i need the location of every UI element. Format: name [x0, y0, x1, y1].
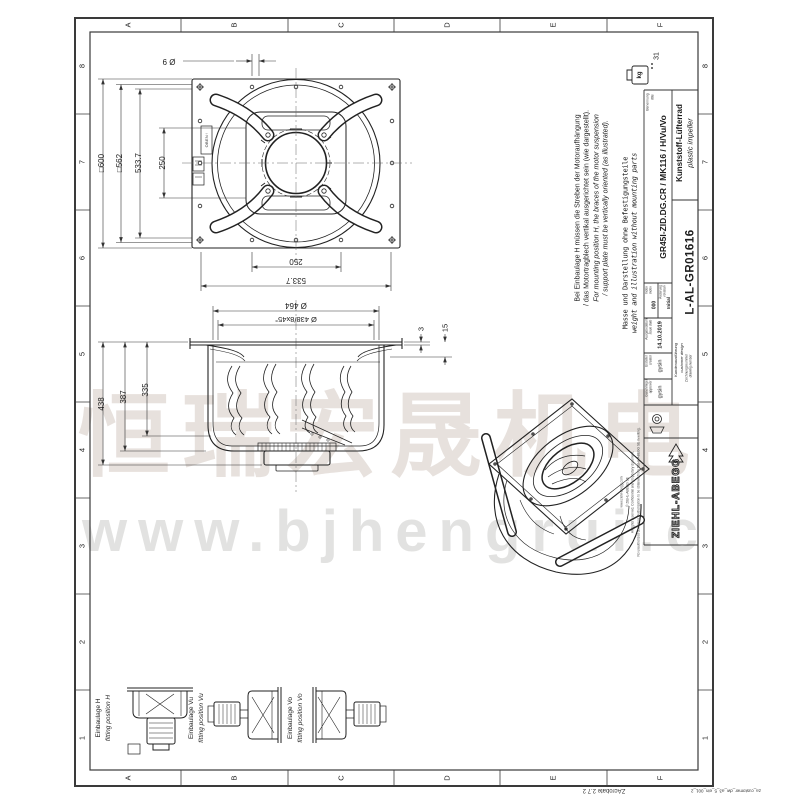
- weight-value: 31: [654, 52, 661, 60]
- product-name-en: plastic impeller: [686, 118, 694, 168]
- dim-height-387: 387: [120, 390, 128, 403]
- grid-number-right-6: 6: [701, 256, 709, 260]
- fitting-vo-label-de: Einbaulage Vo: [288, 697, 295, 739]
- dim-depth-15: 15: [441, 324, 449, 332]
- footer-acrobat-stamp: ZAcrobate 2.7 2: [583, 787, 626, 793]
- dim-square-600: □600: [98, 154, 106, 172]
- drawing-sheet: 恒瑞宏晟机电 www.bjhengrui.c: [0, 0, 800, 800]
- product-name-de: Kunststoff-Lüfterrad: [676, 104, 684, 182]
- grid-letter-bottom-f: F: [656, 776, 664, 781]
- note-de-line2: / das Motortragblech vertikal ausgericht…: [584, 110, 591, 306]
- section-view-dimensions: [98, 306, 452, 465]
- grid-letter-top-f: F: [656, 23, 664, 28]
- index-label-en: index: [649, 286, 652, 294]
- customer-design-label: Kundenausführung: [674, 343, 678, 377]
- grid-number-right-3: 3: [701, 544, 709, 548]
- legal-line-4: No unauthorized disclosure. Authorizatio…: [637, 428, 640, 557]
- fitting-vu-label-en: fitting position Vu: [199, 693, 206, 742]
- dim-533-7-vertical: 533.7: [135, 153, 143, 173]
- note-en-line1: For mounting position H, the braces of t…: [593, 114, 600, 302]
- grid-letter-top-d: D: [443, 22, 451, 27]
- grid-letter-top-a: A: [124, 22, 132, 27]
- note-mass-de: Masse und Darstellung ohne Befestigungst…: [623, 157, 630, 329]
- drawing-number-value: L-AL-GR01616: [685, 229, 697, 314]
- grid-letter-top-b: B: [230, 22, 238, 27]
- fitting-views: [127, 687, 386, 754]
- grid-letter-bottom-e: E: [549, 775, 557, 780]
- grid-number-right-8: 8: [701, 64, 709, 68]
- company-logo-text: ZIEHL-ABEGG: [672, 458, 682, 538]
- grid-number-right-2: 2: [701, 640, 709, 644]
- dim-height-335: 335: [142, 383, 150, 396]
- oben-up-marker: OBEN↑: [205, 133, 209, 148]
- grid-number-left-7: 7: [78, 160, 86, 164]
- issue-date-label-en: issue date: [649, 320, 652, 335]
- dim-250-vertical: 250: [159, 156, 167, 169]
- revision-value: Initial: [667, 297, 672, 309]
- grid-number-left-6: 6: [78, 256, 86, 260]
- grid-number-left-3: 3: [78, 544, 86, 548]
- creator-value: gysin: [658, 360, 664, 373]
- dim-diameter-438-8x45: Ø 438/8x45°: [275, 315, 317, 323]
- projection-symbol-icon: [650, 415, 664, 434]
- legal-line-1: www.ziehl-abegg.com: [620, 476, 623, 507]
- dim-height-438: 438: [98, 397, 106, 410]
- legal-line-3: All rights reserved. Confidential and pr…: [631, 451, 634, 533]
- approver-value: gysin: [658, 386, 664, 399]
- grid-number-right-1: 1: [701, 736, 709, 740]
- fitting-vu-label-de: Einbaulage Vu: [189, 697, 196, 739]
- grid-letter-bottom-c: C: [337, 775, 345, 780]
- approver-label-en: approver: [649, 381, 652, 394]
- grid-letter-bottom-a: A: [124, 775, 132, 780]
- dim-thickness-3: 3: [417, 327, 425, 331]
- note-de-line1: Bei Einbaulage H müssen die Streben der …: [575, 114, 582, 301]
- fitting-h-label-en: fitting position H: [106, 695, 113, 741]
- benennung-label: Benennung: [646, 93, 649, 110]
- grid-number-right-4: 4: [701, 448, 709, 452]
- grid-number-left-1: 1: [78, 736, 86, 740]
- note-en-line2: / support plate must be vertically orien…: [603, 120, 610, 295]
- grid-number-right-7: 7: [701, 160, 709, 164]
- title-label: title: [651, 94, 654, 99]
- customer-design-label-en: customer design: [680, 343, 684, 372]
- grid-letter-bottom-b: B: [230, 775, 238, 780]
- grid-letter-top-e: E: [549, 22, 557, 27]
- dim-square-562: □562: [116, 154, 124, 172]
- dim-diameter-464: Ø 464: [285, 301, 307, 309]
- grid-letter-bottom-d: D: [443, 775, 451, 780]
- fitting-h-label-de: Einbaulage H: [96, 698, 103, 737]
- note-mass-en: weight and illustration without mounting…: [632, 153, 639, 333]
- creator-label-en: creator: [649, 355, 652, 365]
- dim-hole-diameter-9: Ø 9: [163, 57, 176, 65]
- dim-533-7-horizontal: 533.7: [286, 276, 306, 284]
- grid-number-left-2: 2: [78, 640, 86, 644]
- grid-number-left-8: 8: [78, 64, 86, 68]
- fitting-vo-label-en: fitting position Vo: [298, 693, 305, 742]
- legal-line-2: © ZIEHL-ABEGG SE: [626, 477, 629, 507]
- revision-label-en: revision: [663, 286, 666, 297]
- drawing-number-label-en: drawing number: [689, 355, 692, 378]
- dim-250-horizontal: 250: [289, 257, 302, 265]
- grid-number-left-4: 4: [78, 448, 86, 452]
- weight-unit: kg: [637, 71, 643, 78]
- grid-number-right-5: 5: [701, 352, 709, 356]
- grid-number-left-5: 5: [78, 352, 86, 356]
- issue-date-value: 14.10.2019: [658, 321, 664, 349]
- grid-letter-top-c: C: [337, 22, 345, 27]
- footer-template-id: za_customer_dw_a3_5_ein_001_2: [691, 788, 761, 793]
- title-value: GR45I-ZID.DG.CR / MK116 / H/Vu/Vo: [659, 115, 668, 259]
- index-value: 000: [653, 301, 658, 309]
